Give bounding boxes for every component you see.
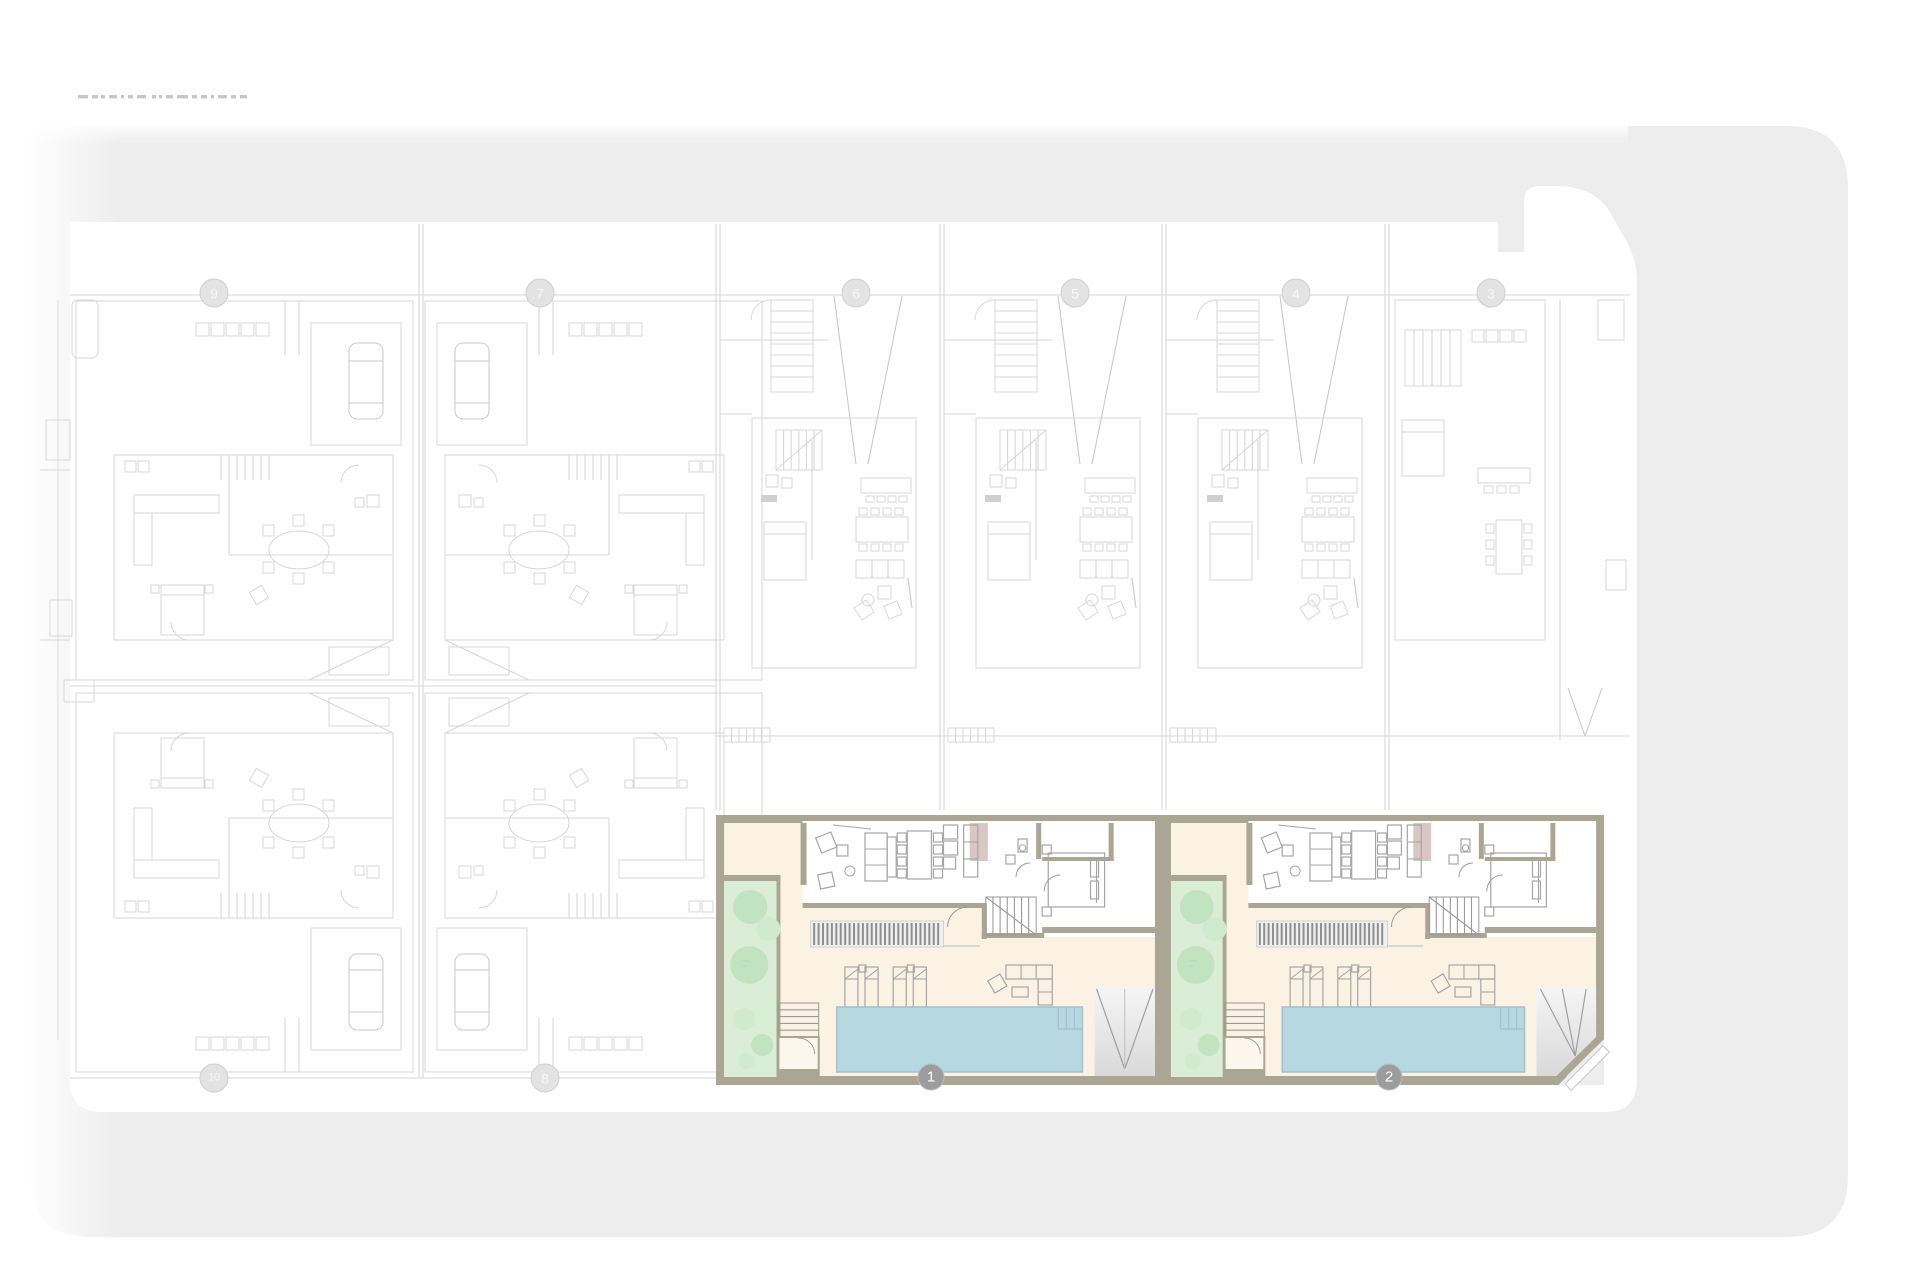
unit-1-floorplan[interactable] — [716, 815, 1163, 1085]
driveway — [1095, 987, 1155, 1076]
garden-tree — [730, 946, 768, 984]
grid-bubble-7: 7 — [526, 279, 555, 308]
garden-tree — [733, 1008, 755, 1030]
highlighted-units — [716, 815, 1609, 1090]
garden-tree — [1177, 946, 1215, 984]
unit-2-floorplan[interactable] — [1163, 815, 1609, 1090]
grid-bubble-8: 8 — [531, 1064, 560, 1093]
site-plan-drawing — [0, 0, 1920, 1280]
garden-tree — [756, 917, 780, 941]
unit-bubble-2[interactable]: 2 — [1376, 1064, 1403, 1091]
garden-tree — [1185, 1053, 1201, 1069]
grid-bubble-6: 6 — [842, 279, 871, 308]
pergola — [811, 921, 944, 947]
garden-tree — [1198, 1034, 1220, 1056]
grid-bubble-10: 10 — [200, 1064, 229, 1093]
grid-bubble-4: 4 — [1282, 279, 1311, 308]
garden-tree — [738, 1053, 754, 1069]
garden-tree — [751, 1034, 773, 1056]
grid-bubble-3: 3 — [1477, 279, 1506, 308]
pergola — [1256, 921, 1387, 947]
garden-tree — [1180, 1008, 1202, 1030]
garden-tree — [1203, 917, 1227, 941]
grid-bubble-9: 9 — [200, 279, 229, 308]
illegible-clipped-text — [78, 95, 247, 98]
floorplan-viewport: 9 7 6 5 4 3 10 8 1 2 — [0, 0, 1920, 1280]
unit-bubble-1[interactable]: 1 — [918, 1064, 945, 1091]
grid-bubble-5: 5 — [1061, 279, 1090, 308]
